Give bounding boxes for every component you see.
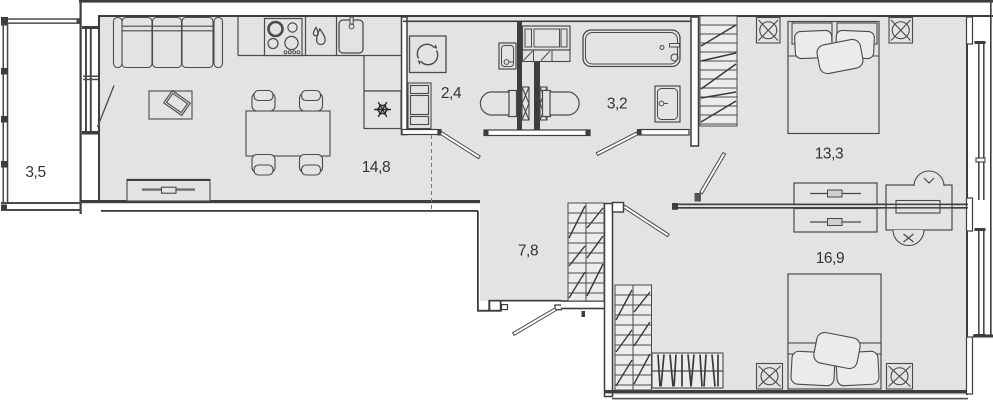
svg-text:13,3: 13,3: [815, 146, 844, 163]
svg-text:3,5: 3,5: [25, 164, 45, 181]
svg-text:2,4: 2,4: [441, 85, 462, 102]
svg-text:14,8: 14,8: [362, 159, 391, 176]
svg-text:16,9: 16,9: [816, 250, 845, 267]
svg-text:7,8: 7,8: [518, 242, 538, 259]
svg-text:3,2: 3,2: [607, 96, 627, 113]
